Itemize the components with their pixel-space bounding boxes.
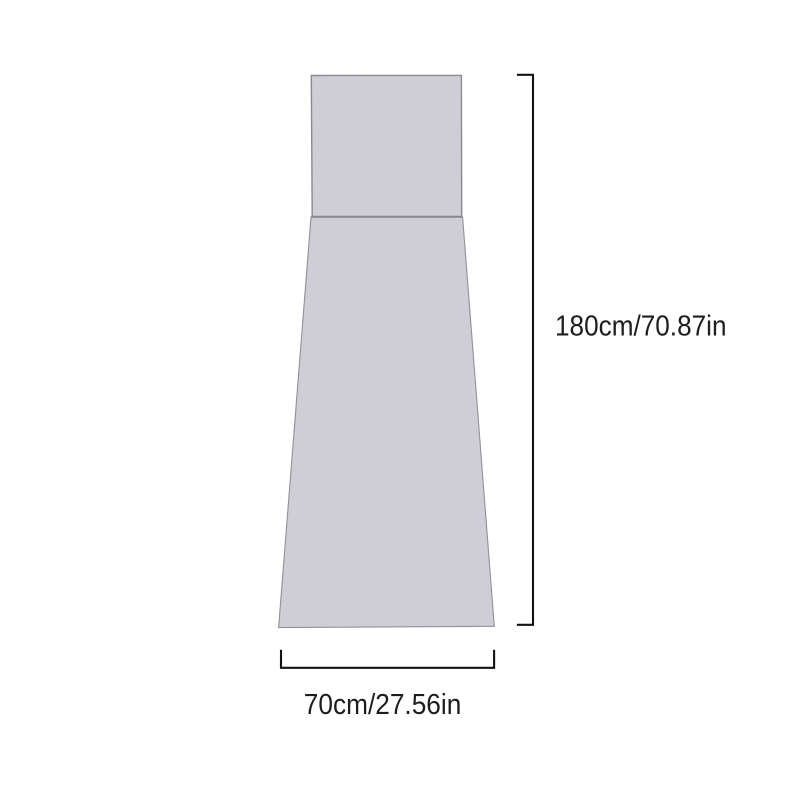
svg-text:70cm/27.56in: 70cm/27.56in	[304, 689, 462, 721]
svg-text:180cm/70.87in: 180cm/70.87in	[555, 311, 727, 343]
